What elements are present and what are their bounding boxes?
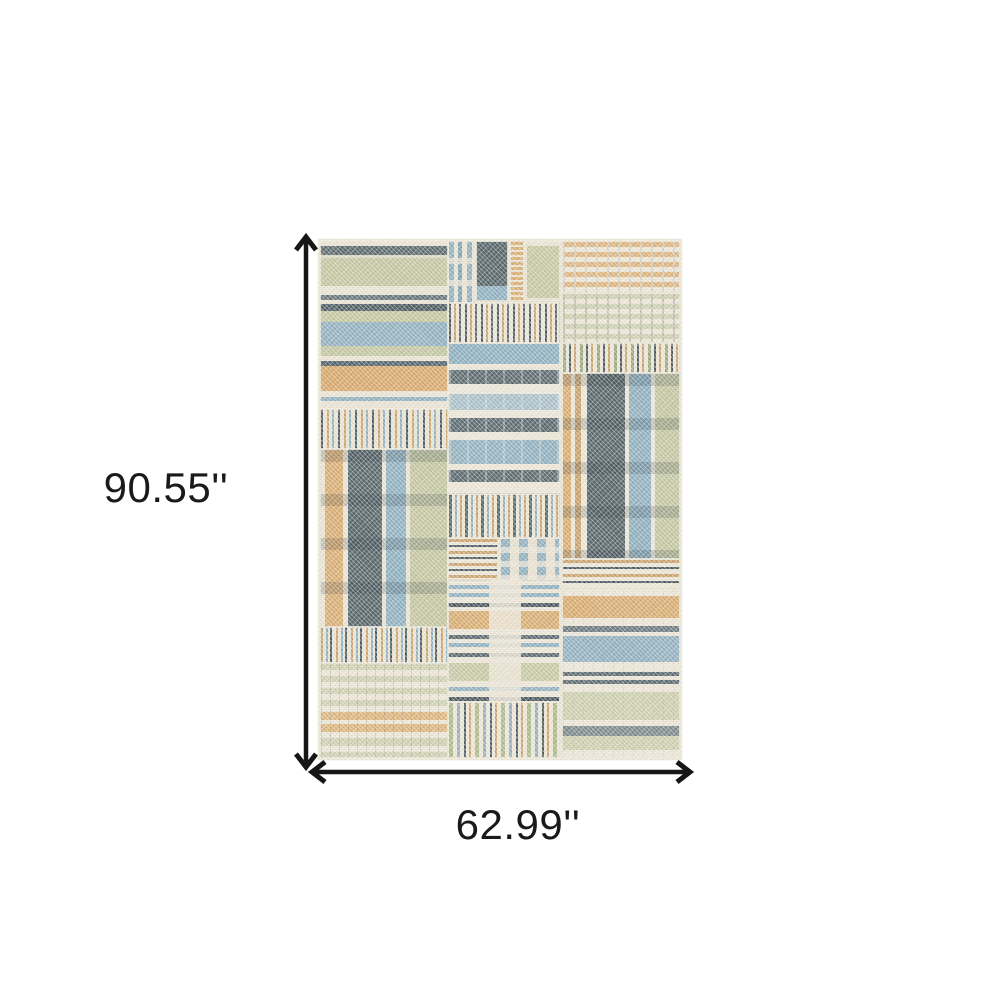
rug-patch-center-sage-block — [526, 245, 560, 299]
rug-patch-center-pinstripes — [448, 303, 560, 343]
rug-patch-center-blue-band — [448, 343, 560, 369]
width-dimension-arrow-icon — [305, 754, 697, 790]
rug-patch-top-right-sage-plaid — [562, 293, 680, 343]
rug-patch-center-blue-checks — [500, 538, 560, 580]
rug-patch-center-ladder — [448, 580, 560, 702]
rug-patch-bottom-left-plaid — [320, 663, 448, 758]
rug-patch-top-left-stripes — [320, 241, 448, 409]
rug-patch-right-thin-stripes — [562, 559, 680, 589]
rug-patch-center-gold-column — [510, 241, 524, 301]
rug-patch-center-gold-stripes — [448, 538, 498, 580]
rug-patch-bottom-right-bands — [562, 589, 680, 758]
product-dimension-image: 90.55'' 62.99'' — [0, 0, 1000, 1000]
rug-patch-right-pinstripes — [562, 343, 680, 373]
rug-patch-center-wide-bands — [448, 369, 560, 494]
rug-patch-left-pinstripes-2 — [320, 627, 448, 663]
rug-patch-left-pinstripes — [320, 409, 448, 449]
width-dimension-label: 62.99'' — [418, 804, 618, 846]
rug-patch-center-blue-blocks — [448, 241, 474, 303]
rug-patch-right-vertical-bands — [562, 373, 680, 559]
rug-patch-left-vertical-bands — [320, 449, 448, 627]
rug-patch-center-bottom-stripes — [448, 702, 560, 758]
rug-patch-top-right-gold-plaid — [562, 241, 680, 293]
rug-patch-center-pinstripes-2 — [448, 494, 560, 538]
rug-photo — [318, 239, 682, 760]
height-dimension-label: 90.55'' — [86, 467, 246, 509]
height-dimension-arrow-icon — [288, 230, 324, 774]
rug-patch-center-slate-block — [476, 241, 508, 301]
